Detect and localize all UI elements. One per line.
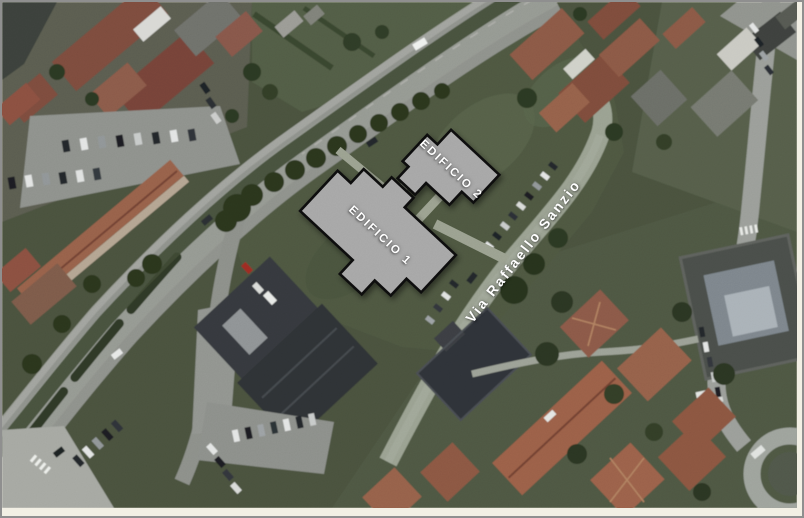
- satellite-photo: EDIFICIO 1 EDIFICIO 2 Via Raffaello Sanz…: [2, 2, 797, 508]
- site-plan-image: EDIFICIO 1 EDIFICIO 2 Via Raffaello Sanz…: [0, 0, 804, 518]
